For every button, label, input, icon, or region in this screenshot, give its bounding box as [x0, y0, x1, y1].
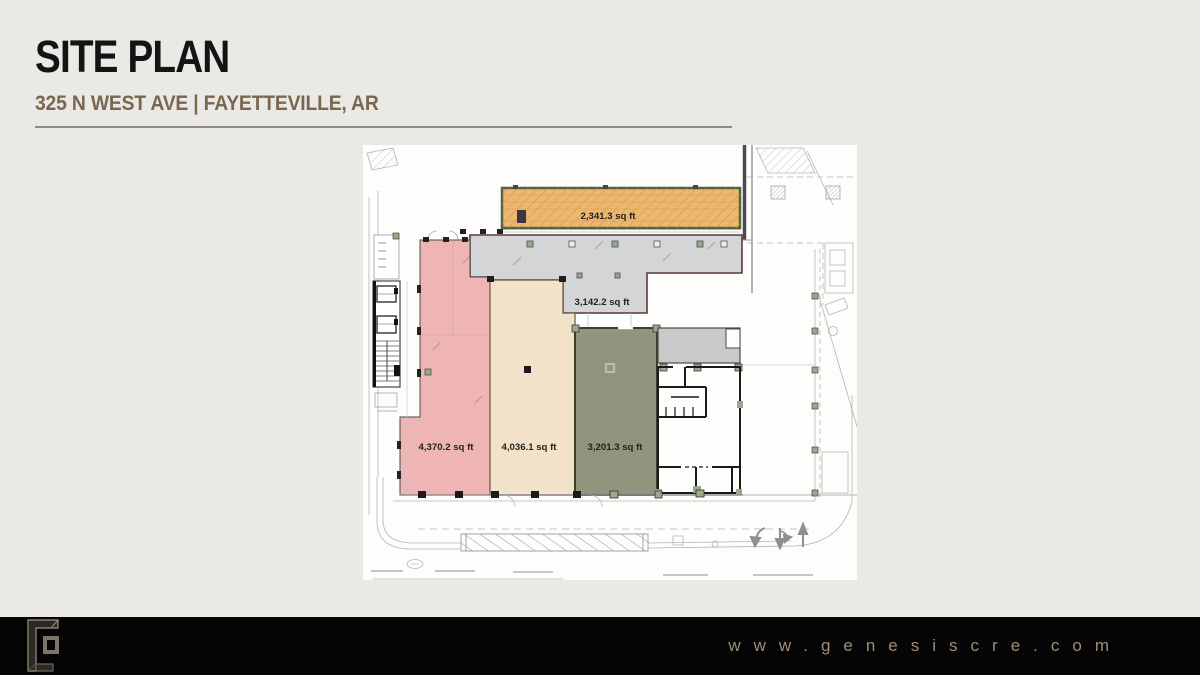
center-suite-label: 4,036.1 sq ft — [502, 442, 558, 453]
north-suite-label: 2,341.3 sq ft — [581, 211, 637, 222]
slide-canvas: SITE PLAN 325 N WEST AVE | FAYETTEVILLE,… — [0, 0, 1200, 675]
east-suite-label: 3,201.3 sq ft — [588, 442, 644, 453]
logo-hook — [45, 638, 57, 652]
footer-website: www.genesiscre.com — [728, 636, 1122, 656]
header-divider — [35, 126, 732, 128]
suite-east: 3,201.3 sq ft — [572, 325, 660, 495]
genesis-logo — [26, 619, 66, 673]
logo-base — [36, 664, 53, 671]
crosswalk — [461, 534, 648, 551]
traffic-arrows — [751, 524, 807, 548]
east-suite-shape — [575, 328, 657, 495]
center-suite-shape — [490, 280, 575, 495]
west-suite-shape — [400, 240, 490, 495]
suite-center: 4,036.1 sq ft — [487, 276, 575, 495]
restroom-rooms — [655, 367, 743, 496]
west-suite-label: 4,370.2 sq ft — [419, 442, 475, 453]
suite-north: 2,341.3 sq ft — [502, 185, 740, 228]
page-title: SITE PLAN — [35, 34, 261, 79]
common-area-label: 3,142.2 sq ft — [575, 297, 631, 308]
adjacent-building-wall — [743, 145, 752, 293]
footer-bar: www.genesiscre.com — [0, 617, 1200, 675]
roof-block — [658, 328, 742, 371]
site-plan-figure: 3,142.2 sq ft 2,341.3 sq ft — [363, 145, 857, 580]
page-subtitle: 325 N WEST AVE | FAYETTEVILLE, AR — [35, 92, 408, 116]
site-plan-drawing: 3,142.2 sq ft 2,341.3 sq ft — [363, 145, 857, 580]
